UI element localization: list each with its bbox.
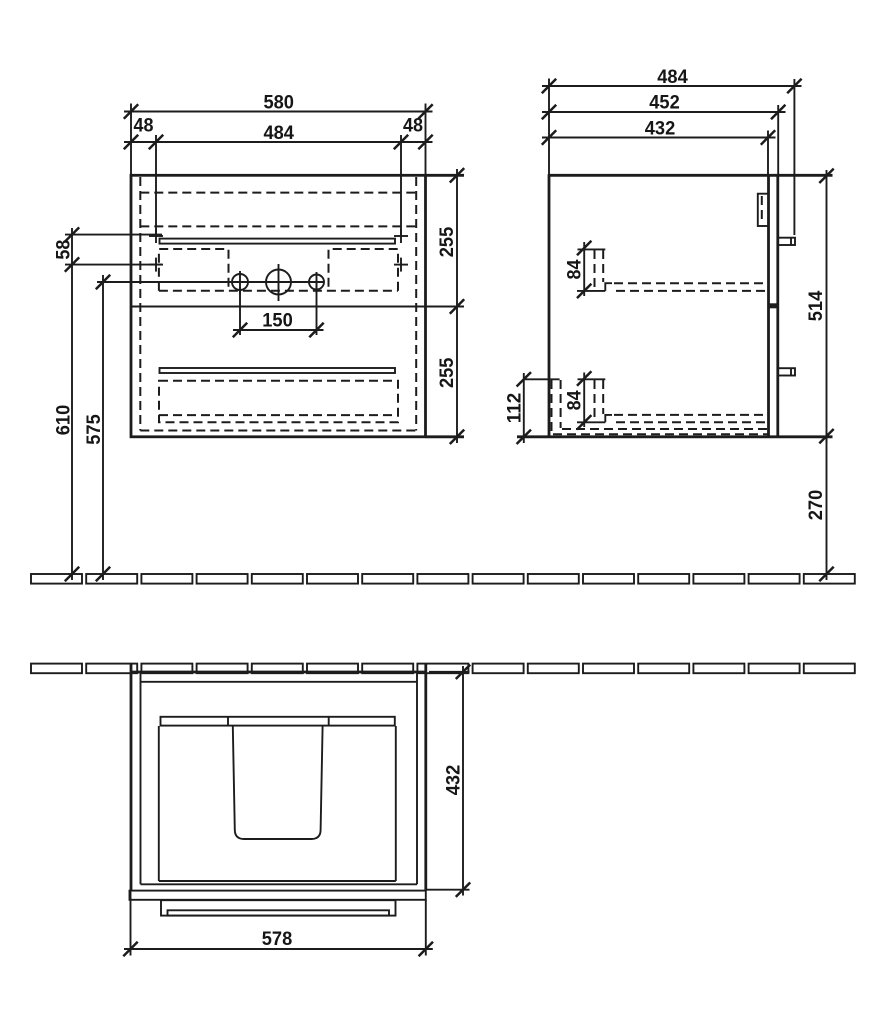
svg-text:578: 578 (262, 928, 293, 950)
svg-text:575: 575 (83, 414, 105, 445)
svg-text:484: 484 (263, 122, 294, 144)
svg-text:432: 432 (443, 765, 465, 796)
svg-text:255: 255 (436, 357, 458, 388)
svg-text:484: 484 (657, 66, 688, 88)
svg-text:432: 432 (645, 117, 676, 139)
svg-text:84: 84 (564, 390, 586, 410)
svg-text:84: 84 (564, 259, 586, 279)
svg-text:150: 150 (262, 310, 293, 332)
svg-text:112: 112 (503, 393, 525, 424)
svg-text:452: 452 (649, 92, 680, 114)
svg-text:270: 270 (805, 490, 827, 521)
svg-text:255: 255 (436, 227, 458, 258)
svg-text:48: 48 (134, 115, 154, 137)
svg-text:580: 580 (263, 92, 294, 114)
svg-text:58: 58 (53, 239, 75, 259)
svg-text:610: 610 (53, 405, 75, 436)
svg-text:514: 514 (805, 291, 827, 322)
svg-text:48: 48 (403, 115, 423, 137)
